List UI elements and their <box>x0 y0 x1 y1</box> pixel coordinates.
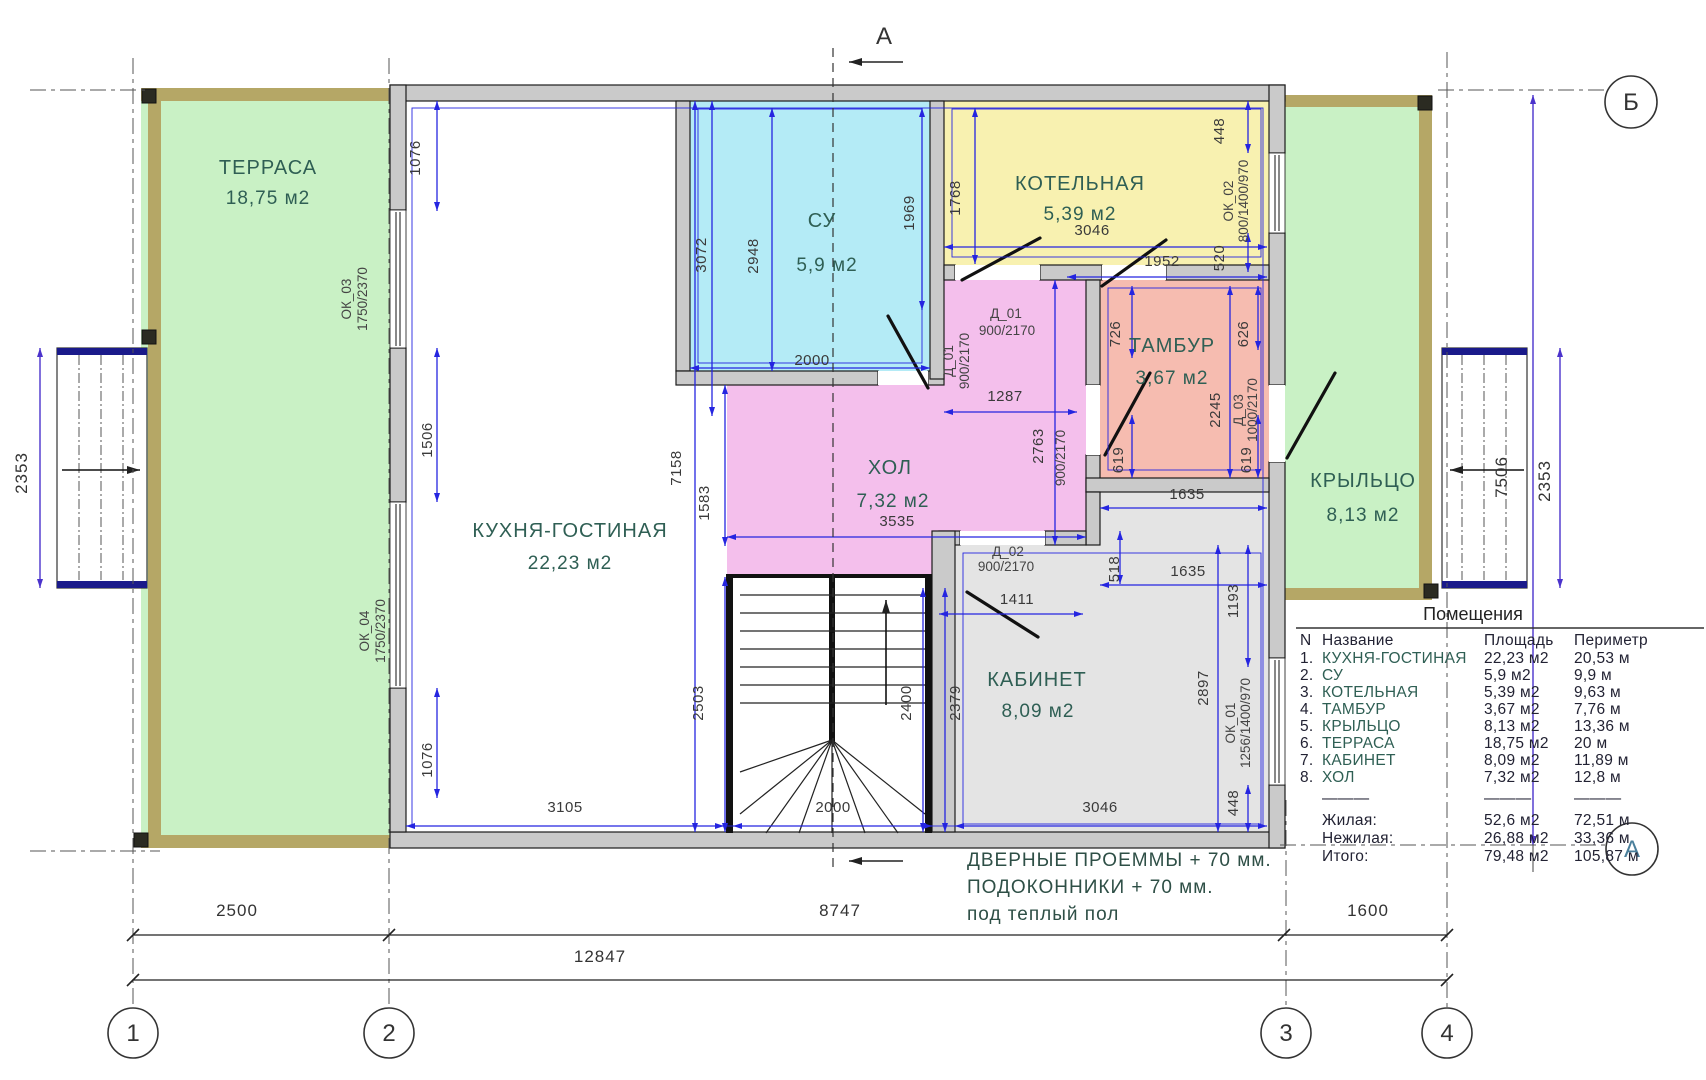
table-separator-2: ——— <box>1484 790 1532 807</box>
table-row: 3. КОТЕЛЬНАЯ 5,39 м2 9,63 м <box>1300 684 1621 701</box>
tag-d01-name: Д_01 <box>990 306 1022 321</box>
row4-num: 4. <box>1300 701 1314 718</box>
table-row: 2. СУ 5,9 м2 9,9 м <box>1300 667 1612 684</box>
dim-kitchen-width: 3105 <box>547 799 582 816</box>
table-separator-1: ——— <box>1322 790 1370 807</box>
dim-boiler-lower: 1952 <box>1144 253 1179 270</box>
row7-perimeter: 11,89 м <box>1574 752 1629 769</box>
dim-tambur-height: 2245 <box>1207 392 1224 427</box>
grid-label-1: 1 <box>126 1020 139 1047</box>
window-ok02 <box>1269 153 1285 233</box>
dim-steps-left: 2353 <box>12 452 31 494</box>
row8-num: 8. <box>1300 769 1314 786</box>
dim-left-bottom: 1076 <box>419 742 436 777</box>
total-sum-area: 79,48 м2 <box>1484 848 1549 865</box>
su-area: 5,9 м2 <box>796 255 857 276</box>
table-header-n: N <box>1300 632 1312 649</box>
dim-below-tambur-width: 1635 <box>1170 563 1205 580</box>
table-header-perimeter: Периметр <box>1574 632 1648 649</box>
table-row: 7. КАБИНЕТ 8,09 м2 11,89 м <box>1300 752 1629 769</box>
dim-boiler-width: 3046 <box>1074 222 1109 239</box>
dim-cabinet-door: 1411 <box>1000 591 1034 608</box>
dim-stairs-height: 2400 <box>898 685 915 720</box>
total-living-perimeter: 72,51 м <box>1574 812 1630 829</box>
su-room <box>690 101 930 371</box>
tag-ok03-name: ОК_03 <box>339 279 354 320</box>
hall-area: 7,32 м2 <box>857 491 930 512</box>
grid-label-3: 3 <box>1279 1020 1292 1047</box>
row1-perimeter: 20,53 м <box>1574 650 1630 667</box>
tag-ok01-name: ОК_01 <box>1223 703 1238 744</box>
total-sum-label: Итого: <box>1322 848 1369 865</box>
row4-perimeter: 7,76 м <box>1574 701 1621 718</box>
terrace-name: ТЕРРАСА <box>219 157 317 179</box>
su-name: СУ <box>808 210 836 232</box>
row6-perimeter: 20 м <box>1574 735 1607 752</box>
kitchen-area: 22,23 м2 <box>528 553 612 574</box>
dim-bottom-seg3: 1600 <box>1347 901 1389 920</box>
tag-d03-name: Д_03 <box>1231 394 1246 426</box>
dim-right-top: 448 <box>1211 118 1228 145</box>
dim-left-mid: 1506 <box>419 422 436 457</box>
dim-tambur-left-top: 726 <box>1107 321 1124 348</box>
tambur-area: 3,67 м2 <box>1136 368 1209 389</box>
dim-below-tambur: 518 <box>1106 556 1123 583</box>
grid-label-2: 2 <box>382 1020 395 1047</box>
tag-ok02-size: 800/1400/970 <box>1236 160 1251 243</box>
tag-d02-size: 900/2170 <box>978 559 1034 574</box>
hall-room-strip <box>727 531 932 577</box>
row3-name: КОТЕЛЬНАЯ <box>1322 684 1419 701</box>
row6-name: ТЕРРАСА <box>1322 735 1395 752</box>
row2-num: 2. <box>1300 667 1314 684</box>
floor-plan-canvas: 1 2 3 4 Б А А ТЕРРАСА 18,75 м2 КУХНЯ-ГОС… <box>0 0 1706 1080</box>
dim-su-right-height: 1969 <box>901 195 918 230</box>
total-nonliving-perimeter: 33,36 м <box>1574 830 1630 847</box>
boiler-name: КОТЕЛЬНАЯ <box>1015 173 1145 195</box>
row2-name: СУ <box>1322 667 1343 684</box>
tag-ok02-name: ОК_02 <box>1221 181 1236 222</box>
row8-name: ХОЛ <box>1322 769 1355 786</box>
tag-d01-rot-size: 900/2170 <box>957 333 972 389</box>
total-nonliving-area: 26,88 м2 <box>1484 830 1549 847</box>
table-totals: Жилая: 52,6 м2 72,51 м Нежилая: 26,88 м2… <box>1322 812 1639 865</box>
bottom-dimension-lines <box>127 929 1453 986</box>
dim-su-height: 3072 <box>693 237 710 272</box>
tag-d03-size: 1000/2170 <box>1245 378 1260 442</box>
row4-area: 3,67 м2 <box>1484 701 1540 718</box>
table-row: 4. ТАМБУР 3,67 м2 7,76 м <box>1300 701 1621 718</box>
dim-su-width: 2000 <box>794 352 829 369</box>
tag-d01-size: 900/2170 <box>979 323 1035 338</box>
dim-tambur-width: 1635 <box>1169 486 1204 503</box>
table-row: 6. ТЕРРАСА 18,75 м2 20 м <box>1300 735 1607 752</box>
row7-num: 7. <box>1300 752 1314 769</box>
dim-cabinet-right: 1193 <box>1225 584 1242 618</box>
table-row: 8. ХОЛ 7,32 м2 12,8 м <box>1300 769 1621 786</box>
dim-hall-left: 1583 <box>696 485 713 520</box>
row5-perimeter: 13,36 м <box>1574 718 1630 735</box>
dim-bottom-total: 12847 <box>574 947 626 966</box>
table-separator-3: ——— <box>1574 790 1622 807</box>
dim-boiler-left: 1768 <box>947 180 964 215</box>
tag-hall-tambur-door-size: 900/2170 <box>1053 430 1068 486</box>
dim-interior-height: 7158 <box>668 450 685 485</box>
dim-bottom-seg2: 8747 <box>819 901 861 920</box>
note-line-3: под теплый пол <box>967 904 1119 925</box>
dim-steps-right: 2353 <box>1535 460 1554 502</box>
row2-perimeter: 9,9 м <box>1574 667 1612 684</box>
table-header-area: Площадь <box>1484 632 1554 649</box>
tag-ok03-size: 1750/2370 <box>355 267 370 331</box>
window-ok04 <box>390 502 406 688</box>
row3-num: 3. <box>1300 684 1314 701</box>
notes-block: ДВЕРНЫЕ ПРОЕММЫ + 70 мм. ПОДОКОННИКИ + 7… <box>967 850 1272 925</box>
dim-cabinet-height: 2897 <box>1195 670 1212 705</box>
row1-name: КУХНЯ-ГОСТИНАЯ <box>1322 650 1467 667</box>
dim-su-inner-height: 2948 <box>745 238 762 273</box>
note-line-2: ПОДОКОННИКИ + 70 мм. <box>967 877 1214 898</box>
dim-hall-width: 3535 <box>879 513 914 530</box>
table-header-name: Название <box>1322 632 1394 649</box>
floor-plan-drawing: 1 2 3 4 Б А А ТЕРРАСА 18,75 м2 КУХНЯ-ГОС… <box>0 0 1706 1080</box>
dim-kitchen-lower: 2503 <box>690 685 707 720</box>
row4-name: ТАМБУР <box>1322 701 1386 718</box>
row5-name: КРЫЛЬЦО <box>1322 718 1401 735</box>
window-ok01 <box>1269 658 1285 785</box>
dim-tambur-right-bot: 619 <box>1238 447 1255 474</box>
total-living-label: Жилая: <box>1322 812 1377 829</box>
row8-perimeter: 12,8 м <box>1574 769 1621 786</box>
row7-area: 8,09 м2 <box>1484 752 1540 769</box>
dim-tambur-right-top: 626 <box>1235 321 1252 348</box>
row6-num: 6. <box>1300 735 1314 752</box>
kitchen-name: КУХНЯ-ГОСТИНАЯ <box>472 520 667 542</box>
porch-name: КРЫЛЬЦО <box>1310 470 1416 492</box>
tag-d01-rot-name: Д_01 <box>941 345 956 377</box>
dim-right-mid: 520 <box>1211 245 1228 272</box>
dim-stairs-width: 2000 <box>815 799 850 816</box>
dim-bottom-seg1: 2500 <box>216 901 258 920</box>
table-title: Помещения <box>1423 604 1523 624</box>
total-sum-perimeter: 105,87 м <box>1574 848 1639 865</box>
row5-num: 5. <box>1300 718 1314 735</box>
tambur-name: ТАМБУР <box>1129 335 1215 357</box>
window-ok03 <box>390 210 406 348</box>
porch-area: 8,13 м2 <box>1327 505 1400 526</box>
dim-tambur-left-bot: 619 <box>1110 447 1127 474</box>
terrace-area: 18,75 м2 <box>226 188 310 209</box>
dim-hall-right-height: 2763 <box>1030 428 1047 463</box>
row7-name: КАБИНЕТ <box>1322 752 1396 769</box>
row1-num: 1. <box>1300 650 1314 667</box>
row5-area: 8,13 м2 <box>1484 718 1540 735</box>
tag-ok04-size: 1750/2370 <box>373 599 388 663</box>
total-living-area: 52,6 м2 <box>1484 812 1540 829</box>
note-line-1: ДВЕРНЫЕ ПРОЕММЫ + 70 мм. <box>967 850 1272 871</box>
tag-ok01-size: 1256/1400/970 <box>1238 678 1253 768</box>
row3-perimeter: 9,63 м <box>1574 684 1621 701</box>
grid-label-4: 4 <box>1440 1020 1453 1047</box>
row1-area: 22,23 м2 <box>1484 650 1549 667</box>
total-nonliving-label: Нежилая: <box>1322 830 1393 847</box>
row3-area: 5,39 м2 <box>1484 684 1540 701</box>
dim-hall-arm-width: 1287 <box>987 388 1022 405</box>
table-row: 5. КРЫЛЬЦО 8,13 м2 13,36 м <box>1300 718 1630 735</box>
section-mark-a: А <box>876 23 892 50</box>
grid-label-b: Б <box>1623 89 1639 116</box>
dim-cabinet-width: 3046 <box>1082 799 1117 816</box>
dim-left-top: 1076 <box>407 140 424 175</box>
cabinet-area: 8,09 м2 <box>1002 701 1075 722</box>
cabinet-name: КАБИНЕТ <box>987 669 1087 691</box>
row6-area: 18,75 м2 <box>1484 735 1549 752</box>
tag-d02-name: Д_02 <box>992 544 1024 559</box>
right-entry-steps <box>1442 348 1527 588</box>
dim-stairs-right: 2379 <box>947 685 964 720</box>
row2-area: 5,9 м2 <box>1484 667 1531 684</box>
table-row: 1. КУХНЯ-ГОСТИНАЯ 22,23 м2 20,53 м <box>1300 650 1630 667</box>
dim-right-total: 7506 <box>1492 456 1511 498</box>
row8-area: 7,32 м2 <box>1484 769 1540 786</box>
dim-right-bottom: 448 <box>1225 790 1242 817</box>
tag-ok04-name: ОК_04 <box>357 610 372 651</box>
hall-name: ХОЛ <box>868 457 912 479</box>
